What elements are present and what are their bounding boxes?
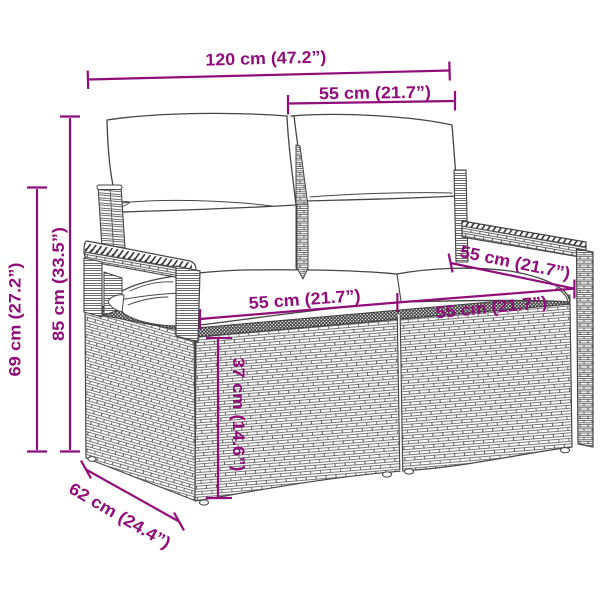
svg-text:69 cm (27.2”): 69 cm (27.2”) bbox=[6, 263, 25, 377]
svg-text:55 cm (21.7”): 55 cm (21.7”) bbox=[319, 83, 431, 104]
svg-text:85 cm (33.5”): 85 cm (33.5”) bbox=[49, 227, 68, 341]
svg-text:120 cm (47.2”): 120 cm (47.2”) bbox=[205, 47, 326, 69]
svg-text:37 cm (14.6”): 37 cm (14.6”) bbox=[229, 358, 248, 472]
